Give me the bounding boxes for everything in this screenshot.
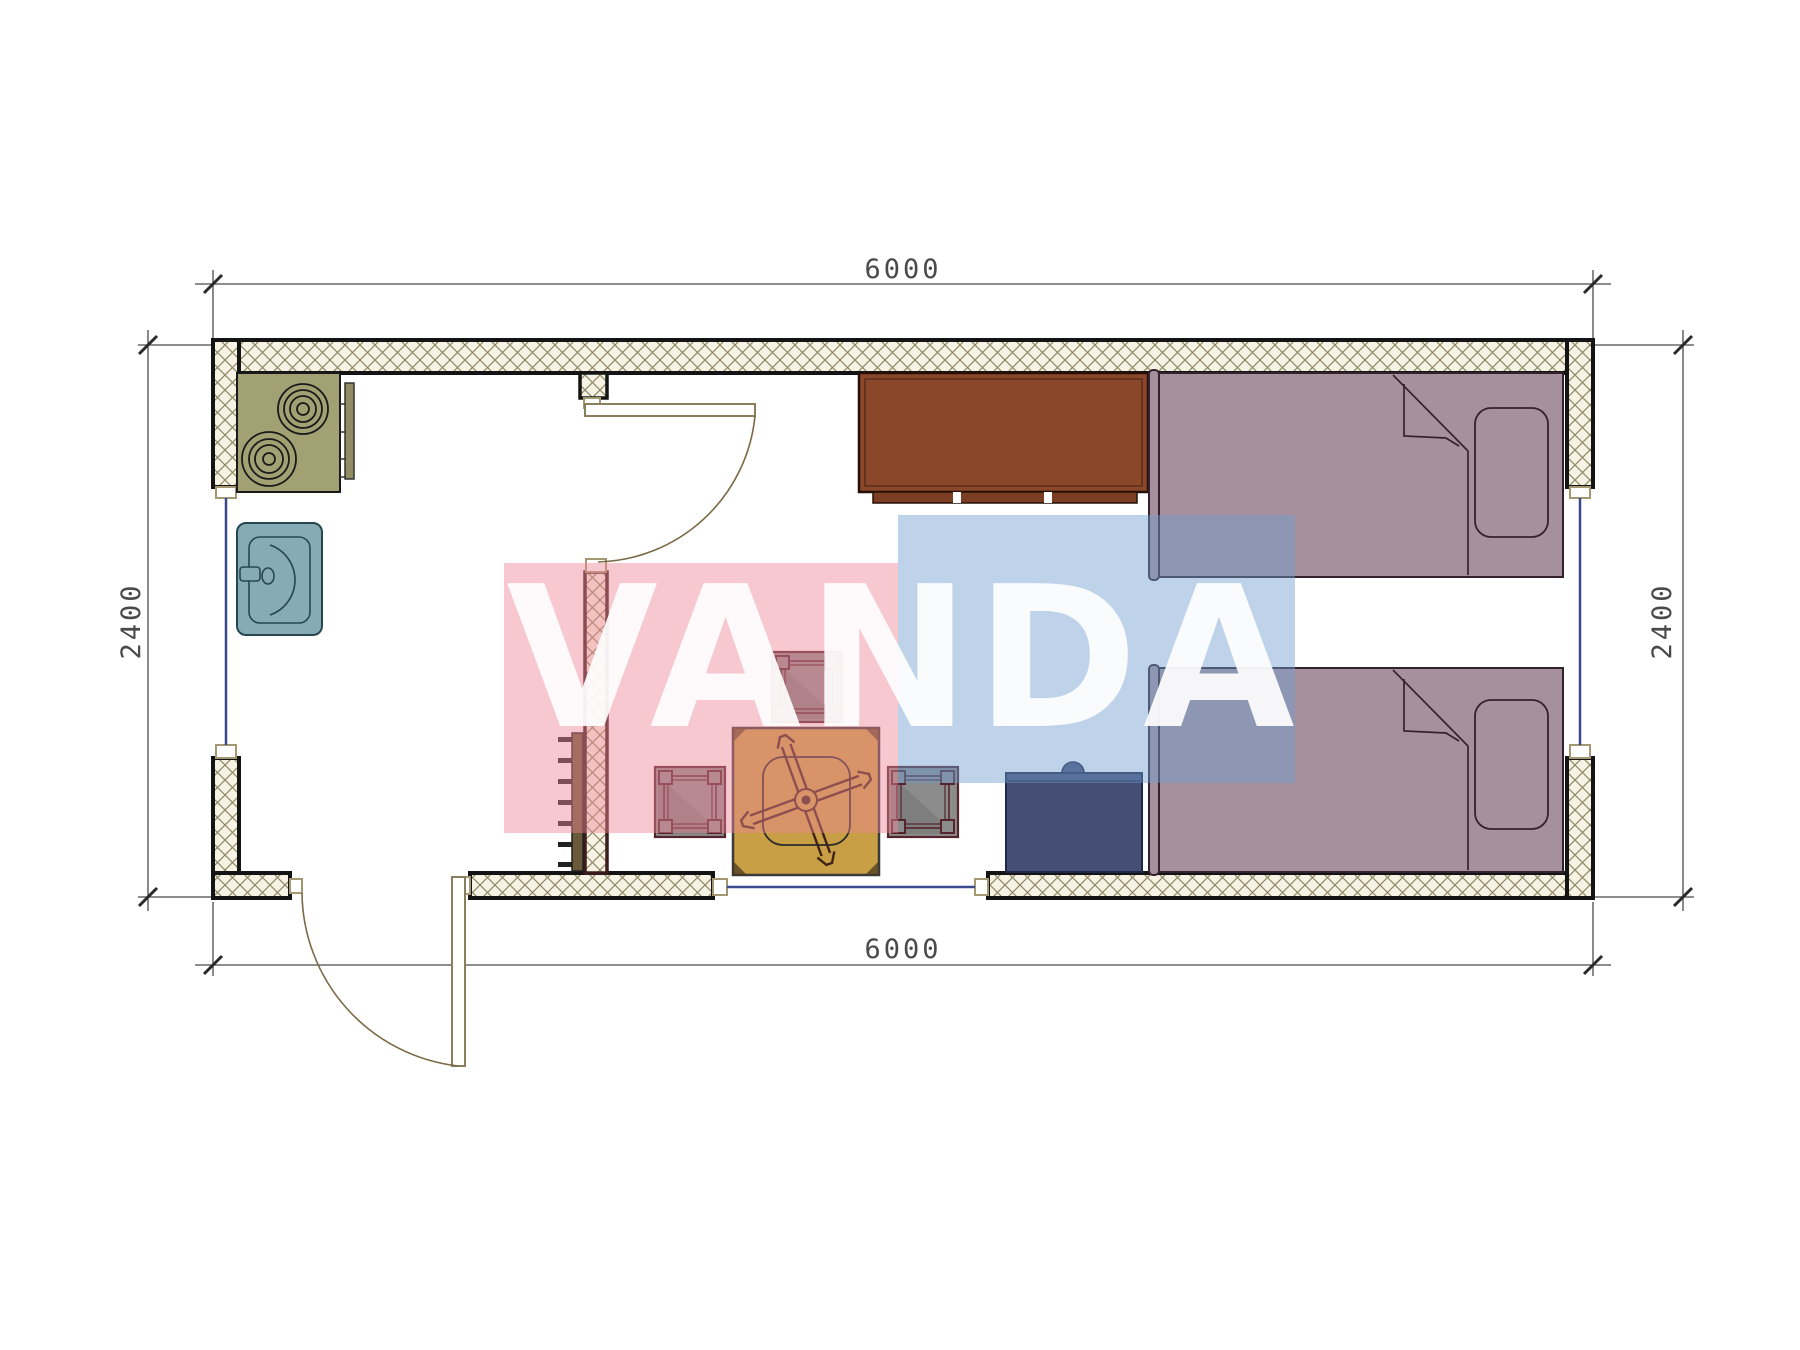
dimension-top: 6000 [195, 254, 1611, 338]
nightstand-icon [1006, 773, 1142, 872]
watermark-text: VANDA [506, 545, 1300, 773]
window-cap [975, 879, 988, 895]
faucet-knob [262, 568, 274, 584]
door-leaf [585, 404, 755, 416]
pillow-icon [1475, 700, 1548, 829]
window-cap [216, 745, 236, 758]
wall-right-lower [1567, 758, 1593, 898]
wall-right-upper [1567, 340, 1593, 487]
wardrobe-cabinet [859, 373, 1148, 503]
door-swing-icon [598, 416, 755, 562]
dimension-left: 2400 [116, 330, 211, 911]
stove-handle [345, 383, 354, 479]
dim-left-label: 2400 [116, 582, 147, 659]
interior-door [585, 404, 755, 562]
wardrobe-cabinet-icon [859, 373, 1148, 492]
floor-plan-canvas: 6000 6000 2400 2400 [0, 0, 1800, 1350]
entrance-door [302, 877, 465, 1066]
window-cap [713, 879, 727, 895]
wall-left-upper [213, 340, 239, 487]
door-jamb [580, 373, 607, 398]
dim-top-label: 6000 [864, 254, 941, 285]
wall-bottom-mid [470, 873, 713, 898]
wall-bottom-right [988, 873, 1593, 898]
window-cap [1570, 487, 1590, 498]
stove-icon [237, 373, 340, 492]
dimension-bottom: 6000 [195, 902, 1611, 976]
stove [237, 373, 354, 492]
wall-top [213, 340, 1593, 373]
dim-bottom-label: 6000 [864, 934, 941, 965]
window-cap [216, 487, 236, 498]
door-stop [290, 879, 302, 893]
sink [237, 523, 322, 635]
dimension-right: 2400 [1595, 330, 1694, 911]
floor-plan-page: 6000 6000 2400 2400 [0, 0, 1800, 1350]
faucet-icon [240, 567, 260, 581]
wall-bottom-left-foot [213, 873, 290, 898]
door-swing-icon [302, 893, 458, 1066]
dim-right-label: 2400 [1647, 582, 1678, 659]
cabinet-base [873, 492, 1137, 503]
window-cap [1570, 745, 1590, 758]
pillow-icon [1475, 408, 1548, 537]
door-leaf [452, 877, 465, 1066]
